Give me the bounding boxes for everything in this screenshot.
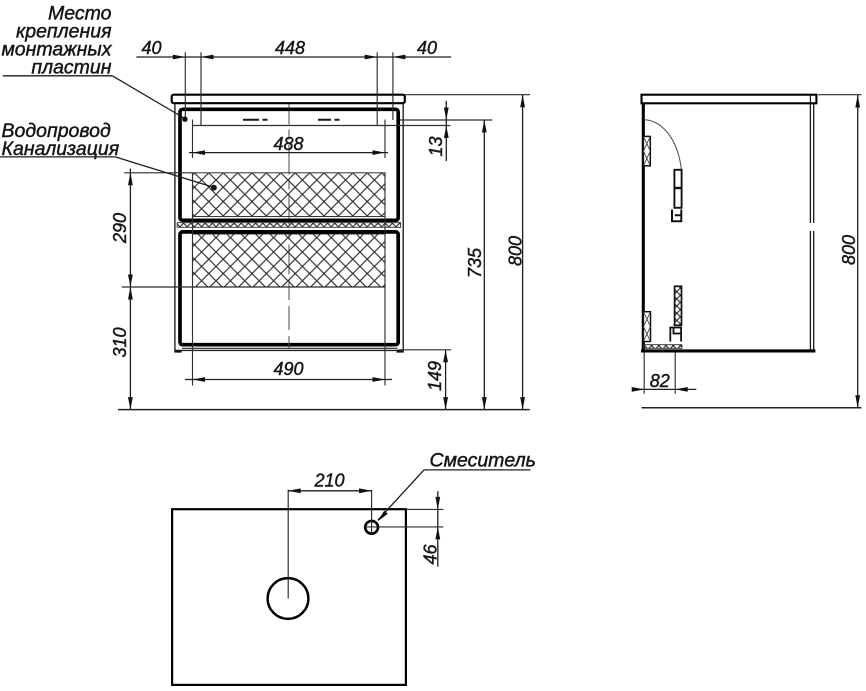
svg-text:310: 310 [110,327,130,357]
svg-text:40: 40 [141,38,161,58]
svg-text:490: 490 [273,359,303,379]
svg-text:40: 40 [417,38,437,58]
svg-text:488: 488 [273,134,303,154]
svg-text:82: 82 [650,371,670,391]
svg-text:пластин: пластин [31,56,111,78]
svg-text:Смеситель: Смеситель [430,450,536,472]
svg-text:13: 13 [426,136,446,156]
svg-text:800: 800 [839,235,859,265]
svg-text:210: 210 [313,471,344,491]
svg-text:149: 149 [425,361,445,391]
svg-text:735: 735 [465,247,485,278]
svg-text:800: 800 [506,236,526,266]
svg-text:448: 448 [275,38,305,58]
svg-text:290: 290 [110,213,130,244]
svg-text:46: 46 [421,543,441,564]
